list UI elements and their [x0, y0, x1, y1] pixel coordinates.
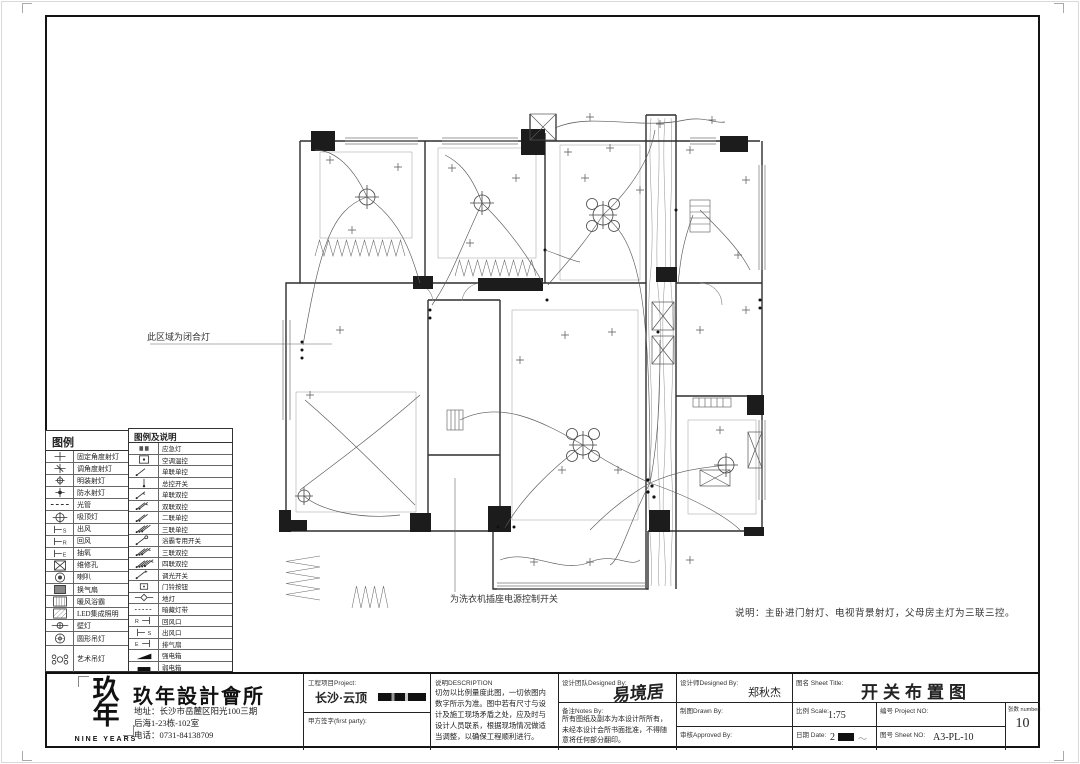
legend-row: 地灯 [129, 593, 232, 605]
date-value: 2 [830, 732, 835, 743]
project-redaction [378, 693, 426, 701]
floor-lamp-icon [129, 593, 159, 604]
drawing-sheet: 此区域为闭合灯 为洗衣机插座电源控制开关 说明：主卧进门射灯、电视背景射灯，父母… [0, 0, 1080, 764]
legend-table: 图例 固定角度射灯调角度射灯明装射灯防水射灯光管吸顶灯S出风R回风E抽氧维修孔喇… [45, 430, 129, 672]
legend-label: 空调温控 [159, 455, 188, 465]
ceiling-lamp-icon [46, 511, 74, 522]
company-logo: 玖年 [82, 678, 130, 734]
wiring [300, 119, 750, 566]
legend-row: 吸顶灯 [46, 511, 128, 523]
legend-row: 光管 [46, 499, 128, 511]
company-address-1: 地址：长沙市岳麓区阳光100三期 [134, 705, 257, 717]
legend-label: 门铃按钮 [159, 581, 188, 591]
legend-label: 地灯 [159, 593, 175, 603]
legend-label: 回风口 [159, 616, 182, 626]
legend-label: 喇叭 [74, 572, 91, 582]
doorbell-icon [129, 581, 159, 592]
switch-4g2w-icon [129, 558, 159, 569]
plan-annotation-washer: 为洗衣机插座电源控制开关 [450, 592, 558, 605]
legend-notes-title: 图例及说明 [129, 429, 232, 443]
legend-label: 光管 [74, 500, 91, 510]
ceiling-lamp-symbols [295, 185, 738, 505]
date-redaction [838, 733, 854, 741]
legend-row: 固定角度射灯 [46, 451, 128, 463]
scale-label: 比例 Scale: [796, 705, 829, 715]
drawn-by-label: 制图Drawn By: [680, 705, 723, 715]
air-extract-icon: E [46, 548, 74, 559]
svg-text:S: S [147, 631, 151, 637]
sheet-title: 开关布置图 [792, 678, 1040, 703]
legend-label: 双联双控 [159, 501, 188, 511]
legend-label: 抽氧 [74, 548, 91, 558]
legend-row: 壁灯 [46, 620, 128, 632]
date-scribble: 〜 [858, 732, 867, 745]
legend-row: 喇叭 [46, 572, 128, 584]
fixed-angle-spotlight-icon [46, 451, 74, 462]
legend-notes-table: 图例及说明 应急灯空调温控单联单控总控开关单联双控双联双控二联单控三联单控浴霸专… [128, 428, 233, 672]
air-return-icon: R [46, 536, 74, 547]
exhaust-fan-icon: E [129, 639, 159, 650]
thermostat-icon [129, 455, 159, 466]
legend-row: 单联单控 [129, 466, 232, 478]
legend-row: LED集成照明 [46, 608, 128, 620]
legend-label: 二联单控 [159, 512, 188, 522]
return-vent-icon: R [129, 616, 159, 627]
hidden-strip-icon [129, 604, 159, 615]
waterproof-spotlight-icon [46, 487, 74, 498]
legend-label: 暗藏灯带 [159, 604, 188, 614]
plan-annotation-note: 说明：主卧进门射灯、电视背景射灯，父母房主灯为三联三控。 [735, 605, 1015, 619]
switch-3g2w-icon [129, 547, 159, 558]
legend-label: 调角度射灯 [74, 464, 112, 474]
corner-mark-icon [22, 3, 32, 13]
legend-label: 圆形吊灯 [74, 634, 105, 644]
legend-label: 总控开关 [159, 478, 188, 488]
legend-row: S出风口 [129, 627, 232, 639]
walls [286, 114, 762, 589]
approved-by-label: 审核Approved By: [680, 729, 732, 739]
team-name: 易境居 [612, 677, 664, 707]
access-panel-icon [46, 560, 74, 571]
legend-label: 出风 [74, 524, 91, 534]
count-value: 10 [1005, 716, 1040, 732]
legend-label: 单联双控 [159, 489, 188, 499]
legend-row: R回风 [46, 536, 128, 548]
scale-value: 1:75 [828, 710, 846, 721]
legend-row: 圆形吊灯 [46, 632, 128, 646]
project-label: 工程项目Project: [308, 677, 356, 687]
project-no-label: 编号 Project NO: [880, 705, 928, 715]
legend-label: 三联双控 [159, 547, 188, 557]
bath-heater-icon [46, 596, 74, 607]
sheet-no-label: 图号 Sheet NO: [880, 729, 925, 739]
legend-row: 调角度射灯 [46, 463, 128, 475]
legend-row: 空调温控 [129, 455, 232, 467]
sheet-no-value: A3-PL-10 [933, 732, 974, 743]
company-logo-subtext: NINE YEARS [73, 736, 139, 743]
switch-2g1w-icon [129, 512, 159, 523]
svg-text:S: S [62, 528, 66, 534]
legend-row: 门铃按钮 [129, 581, 232, 593]
downlight-symbols [306, 113, 750, 566]
ceiling-borders [296, 145, 756, 520]
speaker-icon [46, 572, 74, 583]
legend-row: 维修孔 [46, 560, 128, 572]
legend-row: 明装射灯 [46, 475, 128, 487]
tube-light-icon [46, 499, 74, 510]
count-label: 张数 number: [1008, 705, 1041, 713]
legend-row: S出风 [46, 524, 128, 536]
legend-row: 换气扇 [46, 584, 128, 596]
legend-label: 排气扇 [159, 639, 182, 649]
vent-fan-icon [46, 584, 74, 595]
date-label: 日期 Date: [796, 729, 826, 739]
legend-label: 应急灯 [159, 443, 182, 453]
legend-row: 调光开关 [129, 570, 232, 582]
svg-text:R: R [62, 540, 66, 546]
legend-label: 弱电箱 [159, 662, 182, 672]
svg-text:R: R [134, 619, 138, 625]
master-switch-icon [129, 478, 159, 489]
legend-label: 艺术吊灯 [74, 654, 105, 664]
legend-row: 三联双控 [129, 547, 232, 559]
switch-dots [301, 209, 762, 529]
designer-label: 设计师Designed By: [680, 677, 738, 687]
air-supply-icon: S [46, 524, 74, 535]
description-label: 说明DESCRIPTION [435, 677, 492, 687]
legend-row: 艺术吊灯 [46, 646, 128, 672]
legend-label: LED集成照明 [74, 609, 119, 619]
company-address-2: 后海1-23栋-102室 [134, 717, 199, 729]
led-panel-icon [46, 608, 74, 619]
description-text: 切勿以比例量度此图，一切依图内数字所示为准。图中若有尺寸与设计及施工现场矛盾之处… [435, 687, 553, 743]
legend-row: R回风口 [129, 616, 232, 628]
legend-title: 图例 [46, 431, 128, 451]
legend-row: E抽氧 [46, 548, 128, 560]
title-block: 玖年 NINE YEARS 玖年設計會所 地址：长沙市岳麓区阳光100三期 后海… [45, 672, 1040, 748]
switch-1g1w-icon [129, 466, 159, 477]
legend-label: 四联双控 [159, 558, 188, 568]
legend-label: 固定角度射灯 [74, 452, 119, 462]
legend-row: 单联双控 [129, 489, 232, 501]
corner-mark-icon [1054, 3, 1064, 13]
svg-text:E: E [62, 552, 66, 558]
legend-row: 防水射灯 [46, 487, 128, 499]
client-sign-label: 甲方签字(first party): [308, 715, 367, 725]
wardrobe-hatches [286, 240, 536, 608]
designer-name: 郑秋杰 [748, 684, 781, 700]
bath-heater-switch-icon [129, 535, 159, 546]
legend-row: 强电箱 [129, 650, 232, 662]
legend-label: 单联单控 [159, 466, 188, 476]
legend-label: 换气扇 [74, 585, 98, 595]
company-phone: 电话：0731-84138709 [134, 729, 213, 741]
legend-row: 应急灯 [129, 443, 232, 455]
svg-text:E: E [134, 642, 138, 648]
legend-row: 双联双控 [129, 501, 232, 513]
legend-row: 总控开关 [129, 478, 232, 490]
surface-spotlight-icon [46, 475, 74, 486]
corner-mark-icon [22, 751, 32, 761]
art-pendant-icon [46, 646, 74, 672]
legend-label: 强电箱 [159, 650, 182, 660]
notes-text: 所有图纸及副本为本设计所所有，未经本设计会所书面批准，不得随意将任何部分翻印。 [562, 714, 672, 746]
legend-label: 壁灯 [74, 621, 91, 631]
switch-2g2w-icon [129, 501, 159, 512]
strong-power-box-icon [129, 650, 159, 661]
chandelier-symbols [567, 199, 620, 462]
legend-label: 暖风浴霸 [74, 597, 105, 607]
legend-row: E排气扇 [129, 639, 232, 651]
dimmer-switch-icon [129, 570, 159, 581]
legend-label: 回风 [74, 536, 91, 546]
switch-3g1w-icon [129, 524, 159, 535]
adjustable-angle-spotlight-icon [46, 463, 74, 474]
legend-label: 防水射灯 [74, 488, 105, 498]
legend-label: 浴霸专用开关 [159, 535, 201, 545]
legend-label: 维修孔 [74, 560, 98, 570]
legend-label: 调光开关 [159, 570, 188, 580]
legend-row: 四联双控 [129, 558, 232, 570]
legend-row: 暖风浴霸 [46, 596, 128, 608]
emergency-light-icon [129, 443, 159, 454]
wall-lamp-icon [46, 620, 74, 631]
legend-label: 三联单控 [159, 524, 188, 534]
legend-row: 三联单控 [129, 524, 232, 536]
corner-mark-icon [1054, 751, 1064, 761]
plan-annotation-region: 此区域为闭合灯 [147, 330, 210, 343]
wall-blocks [279, 129, 764, 536]
project-name: 长沙·云顶 [315, 689, 367, 706]
windows [283, 138, 765, 589]
legend-row: 二联单控 [129, 512, 232, 524]
legend-label: 出风口 [159, 627, 182, 637]
legend-label: 明装射灯 [74, 476, 105, 486]
legend-row: 暗藏灯带 [129, 604, 232, 616]
switch-1g2w-icon [129, 489, 159, 500]
round-pendant-icon [46, 632, 74, 645]
legend-row: 浴霸专用开关 [129, 535, 232, 547]
supply-vent-icon: S [129, 627, 159, 638]
legend-label: 吸顶灯 [74, 512, 98, 522]
